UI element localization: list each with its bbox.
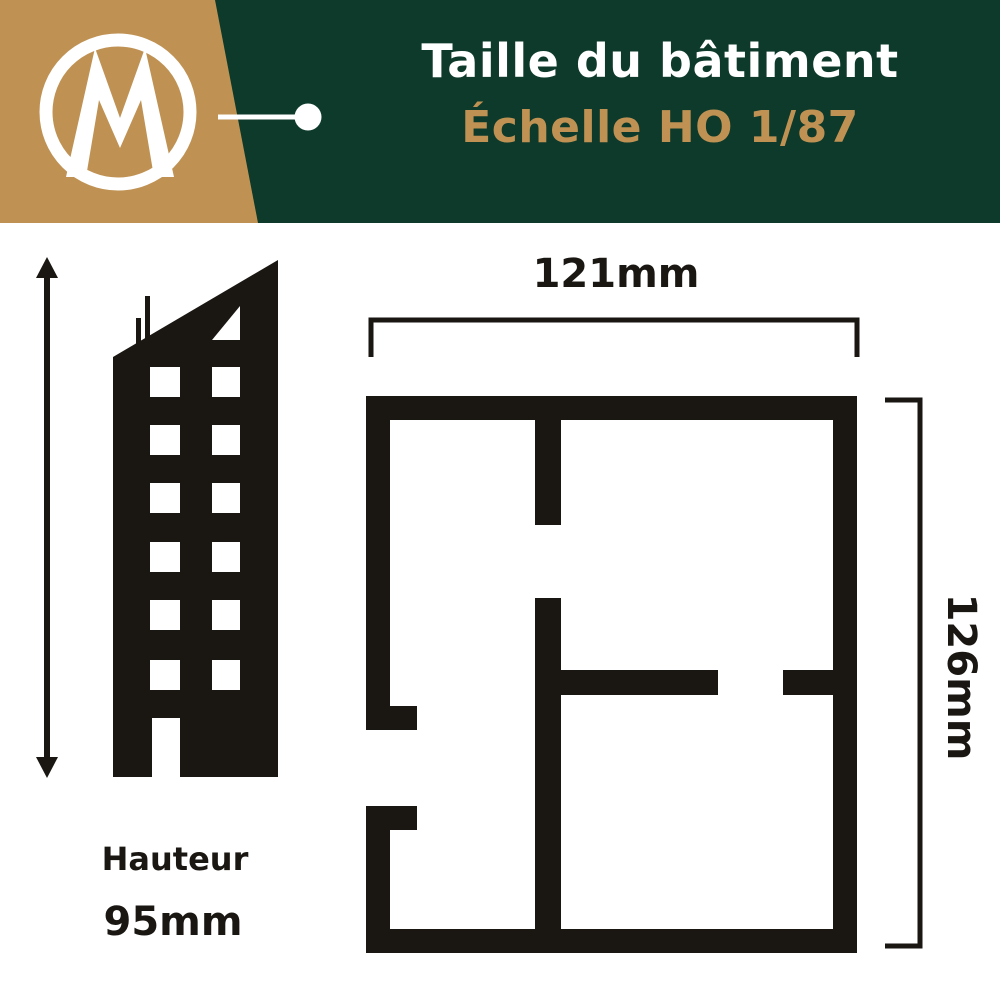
connector-line <box>218 115 296 120</box>
m-logo-icon <box>46 40 190 184</box>
connector-dot-icon <box>295 104 322 131</box>
floor-plan-icon <box>366 396 857 953</box>
width-dimension-label: 121mm <box>533 251 700 297</box>
connector <box>218 104 322 131</box>
height-arrow-icon <box>36 257 58 778</box>
height-dimension-bracket <box>885 400 920 946</box>
height-label: Hauteur <box>102 840 249 878</box>
depth-dimension-label: 126mm <box>938 594 984 761</box>
width-dimension-bracket <box>371 320 857 357</box>
infographic-canvas: Taille du bâtiment Échelle HO 1/87 <box>0 0 1000 1000</box>
building-icon <box>113 260 278 777</box>
height-value: 95mm <box>103 899 242 945</box>
